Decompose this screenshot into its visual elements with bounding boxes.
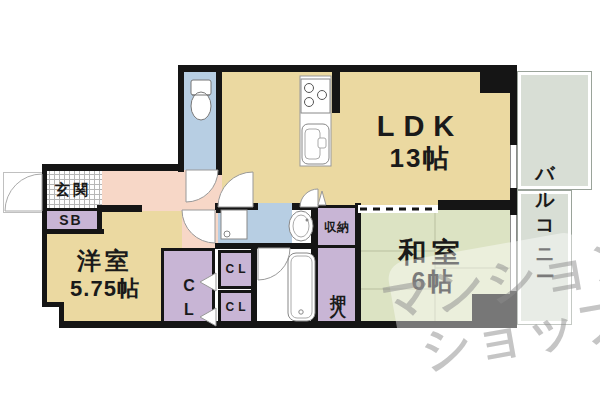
- washbasin-icon: [289, 211, 313, 241]
- closet-small-1-label: CL: [219, 262, 256, 276]
- bathroom-door-arc: [258, 248, 290, 280]
- closet-big-label-c: C: [172, 274, 206, 298]
- washroom-door-arc: [300, 189, 318, 207]
- ldk-door-arc: [218, 172, 253, 207]
- yoshitsu-label: 洋室: [45, 245, 165, 277]
- yoshitsu-door-arc: [182, 210, 215, 243]
- closet-small-2-label: CL: [219, 300, 256, 314]
- genkan-label: 玄関: [46, 181, 100, 200]
- kitchen-counter-icon: [300, 76, 331, 166]
- floorplan: LDK 13帖 和室 6帖 洋室 5.75帖 玄関 SB 収納 押入 C L C…: [0, 0, 600, 400]
- washing-machine-icon: [221, 210, 247, 239]
- ldk-size-label: 13帖: [350, 141, 490, 176]
- toilet-icon: [191, 80, 211, 120]
- shuunou-door-marker: [318, 191, 326, 205]
- ldk-label: LDK: [340, 110, 500, 143]
- closet-big-label: C L: [172, 274, 206, 322]
- entrance-door-arc: [5, 174, 42, 211]
- shuunou-label: 収納: [315, 219, 359, 236]
- shoebox-label: SB: [46, 212, 96, 228]
- oshiire-label: 押入: [328, 256, 348, 322]
- toilet-door-arc: [186, 170, 218, 202]
- closet-big-label-l: L: [172, 298, 206, 322]
- bathtub-icon: [288, 253, 315, 321]
- yoshitsu-size-label: 5.75帖: [38, 274, 172, 304]
